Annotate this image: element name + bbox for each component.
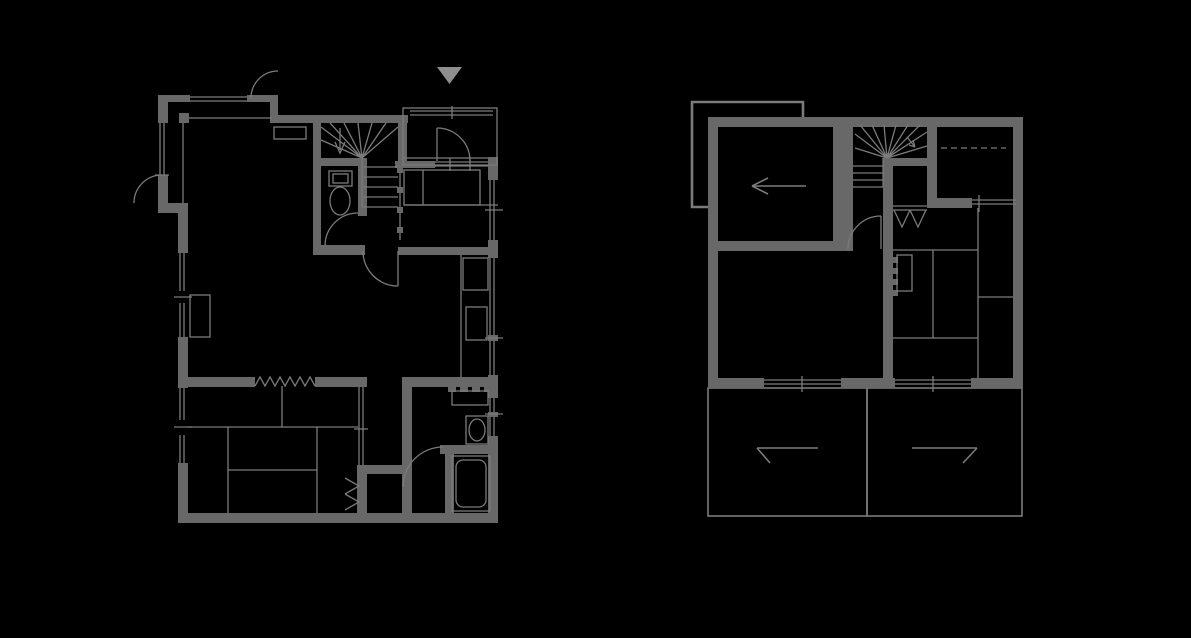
roof-slope-mark-right: [912, 448, 977, 463]
tatami-grid: [893, 208, 1013, 378]
kitchen-counter: [461, 255, 488, 377]
bathtub: [456, 460, 486, 507]
closet-folding-doors-1f: [345, 478, 359, 510]
balconies: [708, 388, 1022, 516]
closet-folding-doors-2f: [893, 206, 927, 227]
roof-slope-mark-left: [757, 448, 818, 463]
walls-2f: [708, 117, 1023, 388]
shoe-cabinet: [404, 170, 498, 205]
bedroom-sliding-door: [354, 387, 368, 465]
windows-1f: [155, 97, 503, 463]
exterior-doors-1f: [134, 71, 278, 203]
kitchen-sink: [463, 258, 488, 290]
balcony-right: [867, 388, 1022, 516]
bedroom-floor-lines: [188, 427, 358, 513]
toilet-room: [325, 171, 358, 246]
corner-post: [179, 113, 189, 123]
door-arc: [251, 71, 278, 98]
desk: [897, 255, 912, 291]
walls-1f: [158, 95, 498, 523]
stair-up-arrow: [907, 137, 915, 147]
door-arc: [363, 251, 398, 286]
direction-arrow: [752, 178, 806, 194]
eave-line: [183, 118, 272, 203]
second-floor-plan: [692, 102, 1023, 516]
floor-plan-drawing: [0, 0, 1191, 638]
first-floor-plan: [134, 67, 503, 523]
living-door: [363, 251, 398, 286]
washroom-counter: [452, 391, 488, 405]
bathroom: [452, 456, 490, 511]
toilet-bowl: [330, 187, 350, 215]
floor-plan-canvas: [0, 0, 1191, 638]
washbasin: [469, 419, 485, 441]
side-furniture: [190, 295, 210, 337]
entrance-door-arc: [437, 128, 470, 161]
shelf: [274, 127, 306, 139]
kitchen-stove: [466, 307, 487, 340]
balcony-left: [708, 388, 867, 516]
curtain-partition: [255, 377, 315, 427]
toilet-door-arc: [325, 213, 358, 246]
entrance-marker-icon: [437, 67, 462, 84]
door-arc: [134, 175, 162, 203]
